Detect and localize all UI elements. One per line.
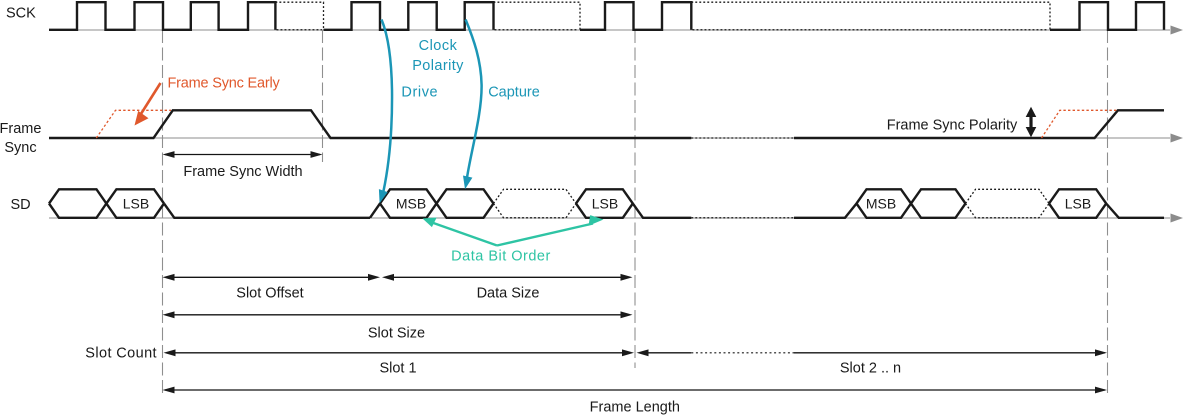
svg-text:Frame Length: Frame Length [590,400,680,416]
svg-text:Frame Sync Early: Frame Sync Early [168,76,281,92]
svg-text:Drive: Drive [401,85,438,101]
svg-text:Slot Size: Slot Size [368,326,425,342]
svg-text:MSB: MSB [866,196,896,212]
svg-text:LSB: LSB [592,196,618,212]
svg-text:Slot 2 .. n: Slot 2 .. n [840,361,901,377]
svg-text:MSB: MSB [396,196,426,212]
svg-text:Data Bit Order: Data Bit Order [451,249,551,265]
svg-text:Capture: Capture [488,85,540,101]
svg-text:Polarity: Polarity [412,58,464,74]
svg-text:LSB: LSB [123,196,149,212]
svg-text:SCK: SCK [6,6,36,22]
svg-text:Data Size: Data Size [477,286,540,302]
svg-text:Sync: Sync [4,140,36,156]
svg-text:Slot Offset: Slot Offset [236,286,303,302]
svg-text:Frame: Frame [0,121,41,137]
svg-text:Slot 1: Slot 1 [379,361,416,377]
svg-text:Clock: Clock [419,38,458,54]
svg-text:Slot Count: Slot Count [85,346,157,362]
svg-text:LSB: LSB [1065,196,1091,212]
svg-text:SD: SD [11,197,31,213]
svg-text:Frame Sync Polarity: Frame Sync Polarity [887,118,1018,134]
svg-text:Frame Sync Width: Frame Sync Width [183,164,302,180]
